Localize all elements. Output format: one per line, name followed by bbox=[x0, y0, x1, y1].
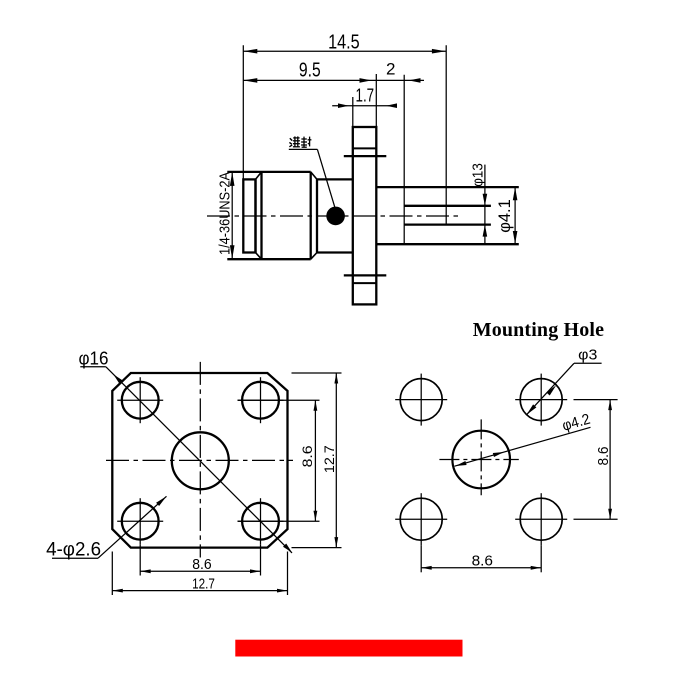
svg-text:φ16: φ16 bbox=[79, 348, 109, 368]
svg-text:8.6: 8.6 bbox=[192, 557, 211, 573]
svg-text:4-φ2.6: 4-φ2.6 bbox=[46, 540, 101, 561]
svg-text:8.6: 8.6 bbox=[299, 445, 315, 467]
svg-text:9.5: 9.5 bbox=[299, 59, 321, 81]
svg-text:12.7: 12.7 bbox=[321, 445, 337, 473]
svg-text:1.7: 1.7 bbox=[356, 86, 375, 106]
svg-text:φ13: φ13 bbox=[470, 163, 486, 187]
svg-text:φ4.1: φ4.1 bbox=[496, 199, 514, 233]
svg-text:8.6: 8.6 bbox=[472, 553, 493, 569]
svg-text:8.6: 8.6 bbox=[596, 447, 612, 466]
svg-text:Mounting Hole: Mounting Hole bbox=[473, 319, 604, 341]
svg-text:2: 2 bbox=[386, 60, 395, 79]
svg-text:1/4-36UNS-2A: 1/4-36UNS-2A bbox=[217, 172, 234, 255]
svg-text:14.5: 14.5 bbox=[328, 31, 360, 54]
svg-text:φ3: φ3 bbox=[578, 347, 597, 364]
svg-text:12.7: 12.7 bbox=[192, 577, 215, 593]
